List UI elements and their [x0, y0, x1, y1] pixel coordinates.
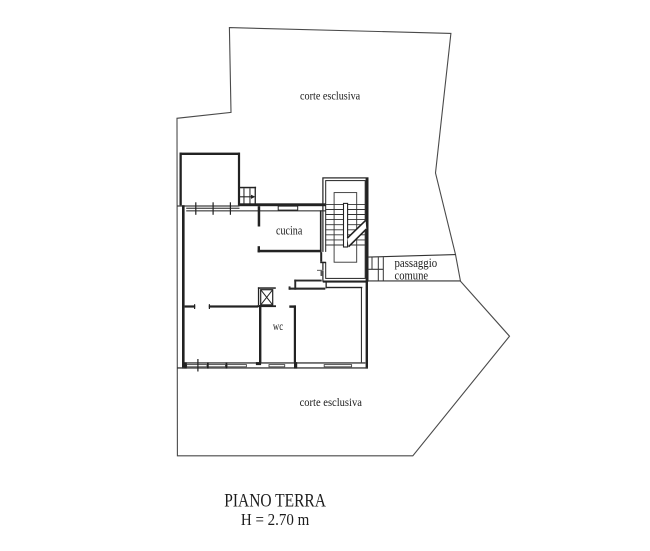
- svg-text:corte esclusiva: corte esclusiva: [300, 396, 363, 409]
- svg-text:comune: comune: [395, 268, 429, 282]
- svg-text:cucina: cucina: [276, 224, 303, 238]
- svg-text:wc: wc: [273, 321, 283, 333]
- svg-text:corte esclusiva: corte esclusiva: [300, 89, 361, 102]
- svg-text:H = 2.70 m: H = 2.70 m: [241, 510, 310, 529]
- svg-text:PIANO TERRA: PIANO TERRA: [224, 491, 326, 512]
